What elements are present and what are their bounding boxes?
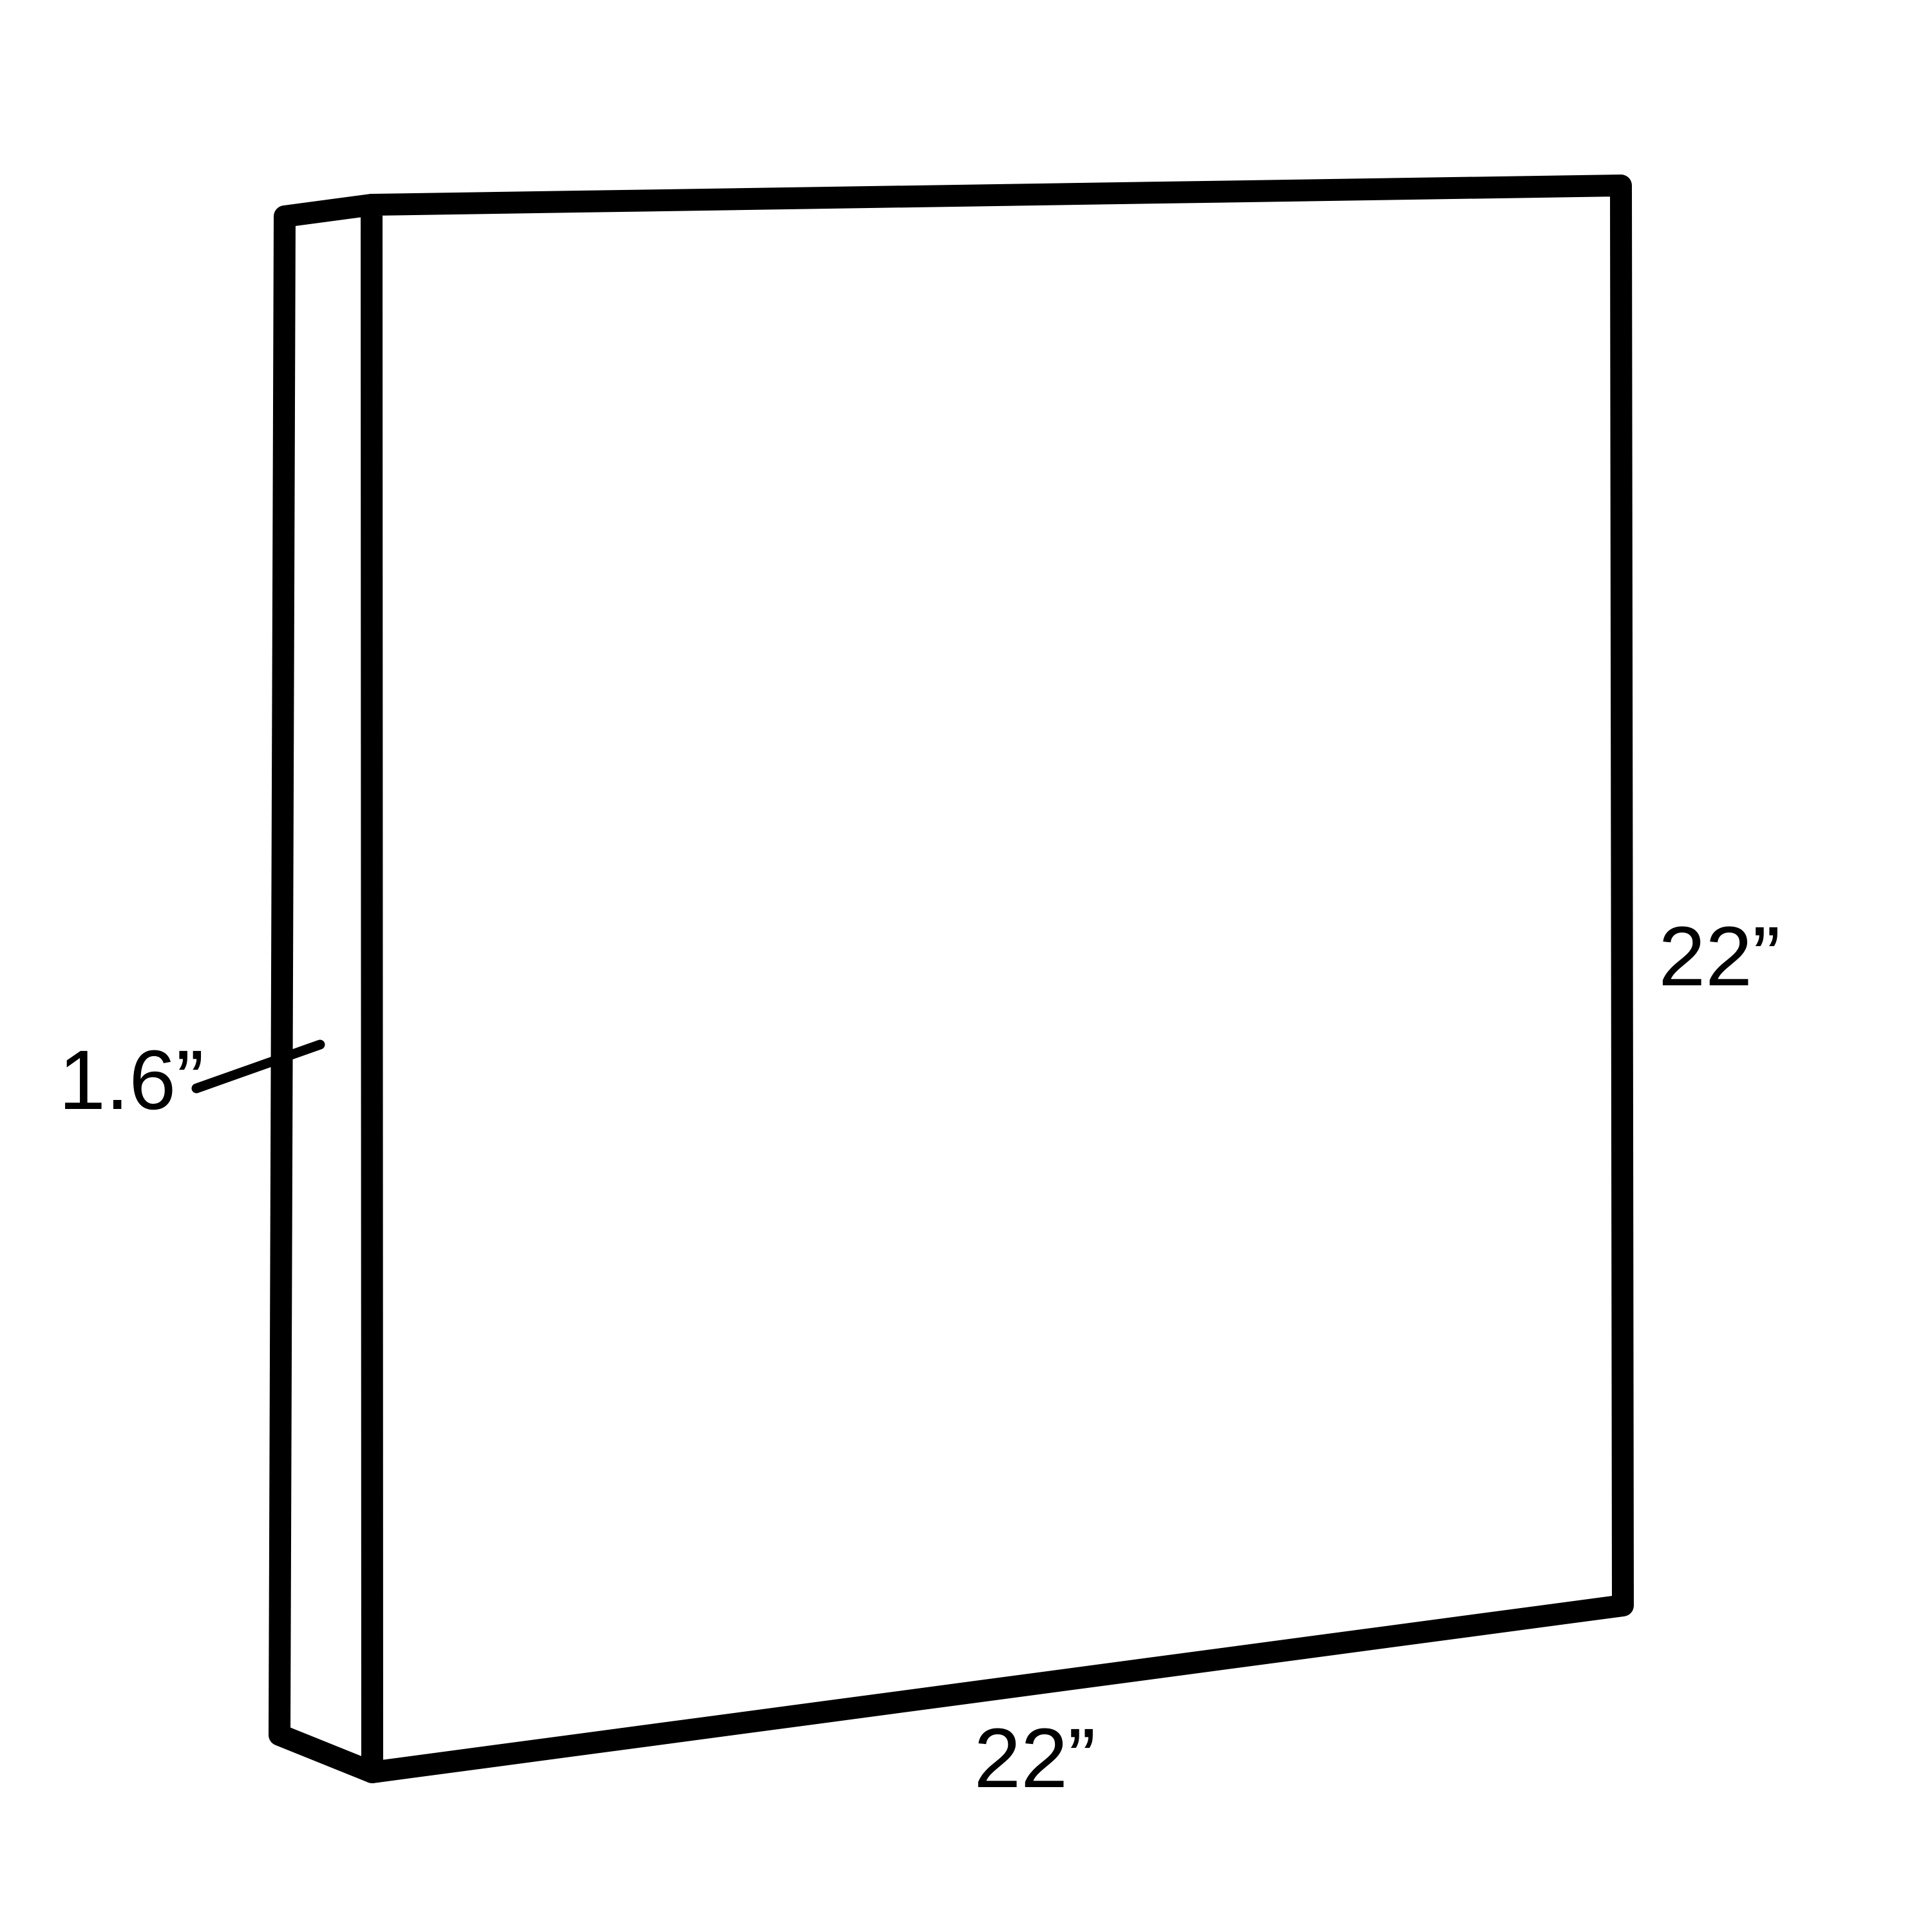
height-dimension-label: 22” [1658,909,1780,1003]
diagram-canvas: 1.6” 22” 22” [0,0,1932,1932]
depth-dimension-label: 1.6” [59,1032,204,1127]
side-panel-outline [279,205,372,1772]
depth-leader-line [196,1045,320,1088]
panel-dimension-diagram: 1.6” 22” 22” [0,0,1932,1932]
front-face-outline [372,185,1623,1772]
width-dimension-label: 22” [974,1710,1095,1805]
